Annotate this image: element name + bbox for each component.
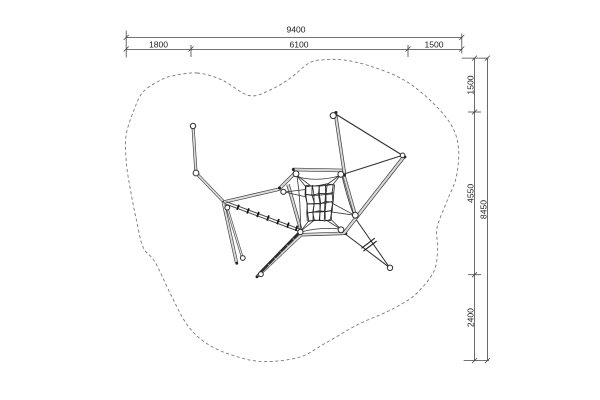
svg-text:9400: 9400 <box>286 25 305 35</box>
svg-text:2400: 2400 <box>466 308 476 327</box>
svg-text:4550: 4550 <box>466 184 476 203</box>
svg-text:6100: 6100 <box>289 40 308 50</box>
svg-text:1500: 1500 <box>424 40 443 50</box>
svg-text:8450: 8450 <box>479 200 489 219</box>
svg-text:1500: 1500 <box>466 75 476 94</box>
svg-text:1800: 1800 <box>149 40 168 50</box>
